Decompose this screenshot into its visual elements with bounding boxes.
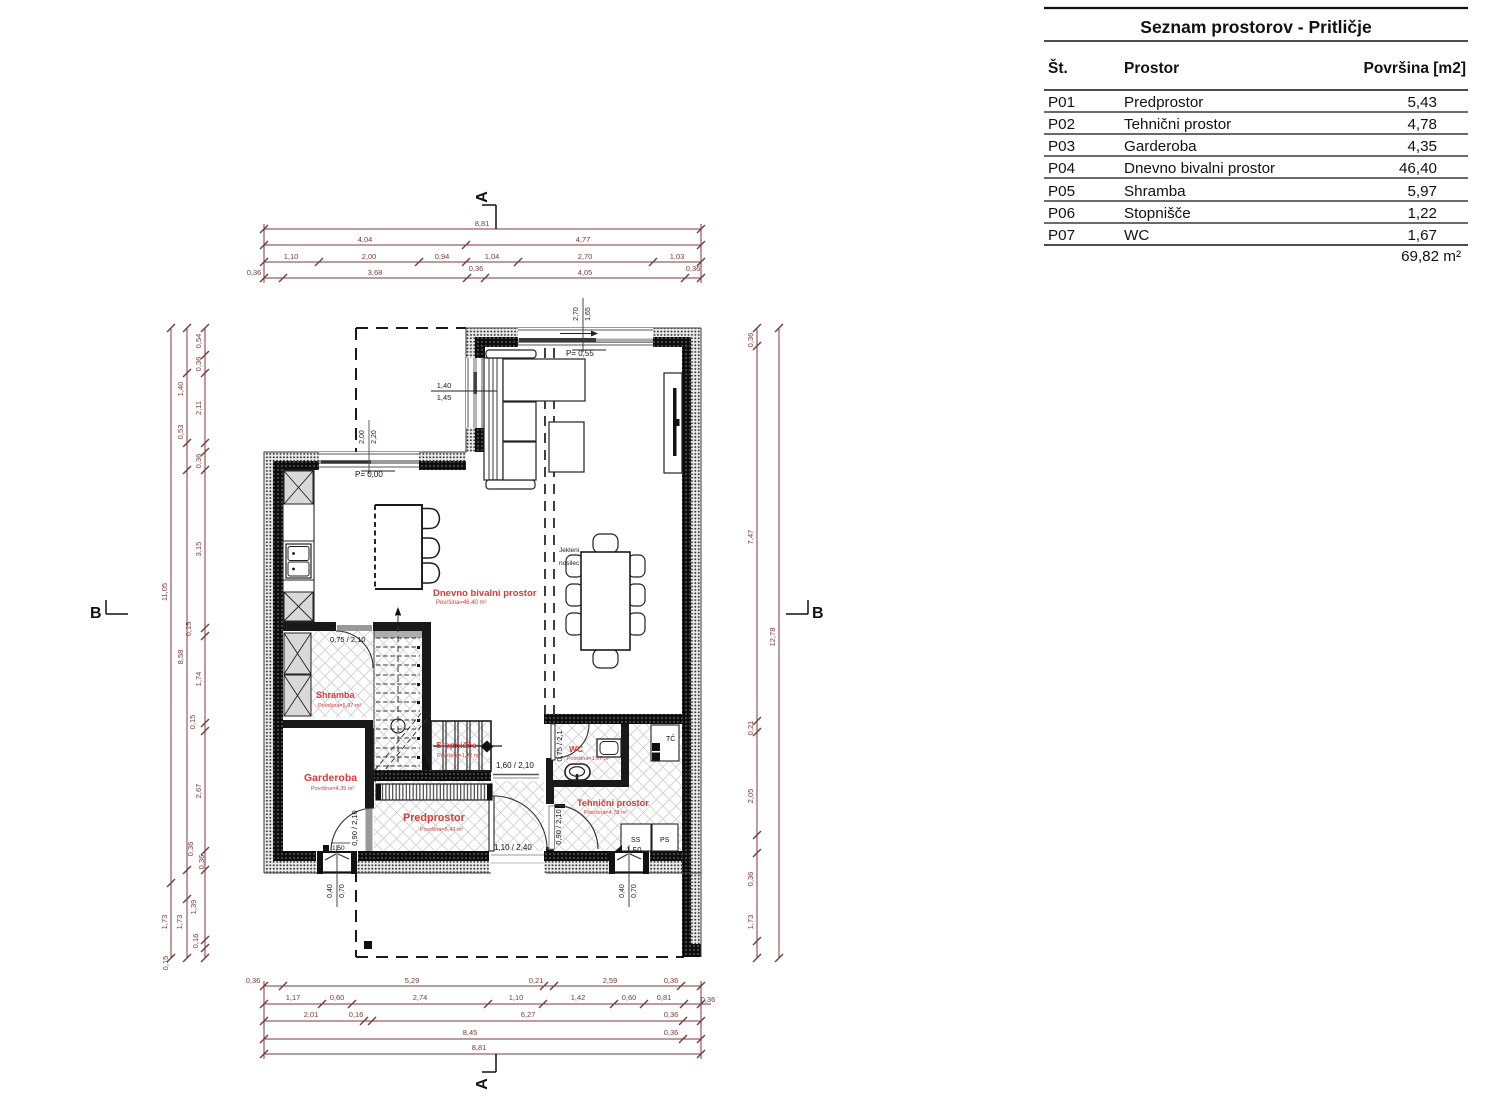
svg-text:0,36: 0,36: [186, 842, 195, 857]
svg-text:A: A: [474, 1078, 491, 1090]
svg-text:0,90 / 2,10: 0,90 / 2,10: [350, 810, 359, 845]
svg-text:46,40: 46,40: [1399, 160, 1437, 177]
svg-text:SS: SS: [631, 837, 641, 844]
svg-text:Površina=5,43 m²: Površina=5,43 m²: [420, 827, 463, 833]
svg-text:Shramba: Shramba: [1124, 183, 1186, 200]
svg-text:WC: WC: [1124, 227, 1149, 244]
svg-text:Površina=1,67 m²: Površina=1,67 m²: [567, 756, 610, 762]
svg-text:11,05: 11,05: [160, 583, 169, 601]
svg-text:69,82 m²: 69,82 m²: [1401, 248, 1461, 265]
svg-text:Površina=1,22 m²: Površina=1,22 m²: [437, 753, 480, 759]
svg-text:Površina [m2]: Površina [m2]: [1363, 60, 1466, 77]
svg-text:1,73: 1,73: [746, 915, 755, 930]
svg-text:Tehnični prostor: Tehnični prostor: [1124, 116, 1231, 133]
svg-text:1,73: 1,73: [160, 915, 169, 930]
svg-text:1,10: 1,10: [284, 252, 299, 261]
svg-text:0,90 / 2,10: 0,90 / 2,10: [554, 809, 563, 844]
svg-text:P07: P07: [1048, 227, 1075, 244]
svg-text:Površina=46,40 m²: Površina=46,40 m²: [436, 600, 487, 606]
svg-text:2,74: 2,74: [413, 993, 428, 1002]
svg-text:Seznam prostorov - Pritličje: Seznam prostorov - Pritličje: [1140, 17, 1372, 37]
svg-text:4,35: 4,35: [1407, 138, 1437, 155]
svg-text:0,36: 0,36: [194, 357, 203, 372]
svg-text:Garderoba: Garderoba: [304, 772, 357, 784]
svg-text:1,40: 1,40: [437, 381, 452, 390]
svg-text:Št.: Št.: [1048, 59, 1068, 77]
svg-text:0,15: 0,15: [184, 622, 193, 637]
svg-text:5,97: 5,97: [1407, 183, 1437, 200]
svg-text:1,60 / 2,10: 1,60 / 2,10: [496, 761, 534, 770]
svg-text:1,65: 1,65: [585, 307, 592, 321]
svg-text:0,16: 0,16: [349, 1010, 364, 1019]
svg-text:8,58: 8,58: [176, 650, 185, 665]
svg-text:B: B: [812, 605, 824, 622]
svg-text:5,43: 5,43: [1407, 94, 1437, 111]
svg-text:2,01: 2,01: [304, 1010, 319, 1019]
svg-text:A: A: [474, 191, 491, 203]
svg-text:1,50: 1,50: [332, 845, 345, 852]
svg-text:0,36: 0,36: [246, 976, 261, 985]
svg-text:0,36: 0,36: [701, 995, 716, 1004]
svg-text:B: B: [90, 605, 102, 622]
svg-text:2,20: 2,20: [371, 430, 378, 444]
svg-text:0,60: 0,60: [330, 993, 345, 1002]
svg-text:Dnevno bivalni prostor: Dnevno bivalni prostor: [433, 588, 537, 599]
svg-text:0,36: 0,36: [664, 1010, 679, 1019]
svg-text:8,81: 8,81: [475, 219, 490, 228]
svg-text:WC: WC: [569, 744, 583, 754]
svg-text:1,45: 1,45: [437, 393, 452, 402]
svg-text:Garderoba: Garderoba: [1124, 138, 1197, 155]
svg-text:Površina=4,78 m²: Površina=4,78 m²: [584, 810, 627, 816]
svg-text:0,36: 0,36: [746, 333, 755, 348]
svg-text:2,00: 2,00: [359, 430, 366, 444]
svg-text:4,78: 4,78: [1407, 116, 1437, 133]
svg-text:3,15: 3,15: [194, 542, 203, 557]
svg-text:0,40: 0,40: [327, 884, 334, 898]
svg-text:4,77: 4,77: [576, 235, 591, 244]
svg-text:1,74: 1,74: [194, 672, 203, 687]
svg-text:4,04: 4,04: [358, 235, 373, 244]
svg-text:0,21: 0,21: [529, 976, 544, 985]
svg-text:P03: P03: [1048, 138, 1075, 155]
svg-text:P06: P06: [1048, 205, 1075, 222]
svg-text:2,70: 2,70: [578, 252, 593, 261]
svg-text:TČ: TČ: [666, 734, 675, 743]
svg-text:3,68: 3,68: [368, 268, 383, 277]
svg-text:0,36: 0,36: [194, 454, 203, 469]
svg-text:0,15: 0,15: [188, 715, 197, 730]
svg-text:P02: P02: [1048, 116, 1075, 133]
svg-text:8,81: 8,81: [472, 1043, 487, 1052]
svg-text:Shramba: Shramba: [316, 690, 356, 700]
svg-text:1,22: 1,22: [1407, 205, 1437, 222]
svg-text:0,36: 0,36: [746, 872, 755, 887]
svg-text:0,36: 0,36: [664, 976, 679, 985]
svg-text:5,29: 5,29: [405, 976, 420, 985]
svg-text:0,70: 0,70: [339, 884, 346, 898]
svg-text:Površina=5,97 m²: Površina=5,97 m²: [318, 703, 361, 709]
svg-text:8,45: 8,45: [463, 1028, 478, 1037]
svg-text:1,39: 1,39: [189, 900, 198, 915]
svg-text:Stopnišče: Stopnišče: [436, 740, 477, 750]
svg-text:P05: P05: [1048, 183, 1075, 200]
svg-text:0,53: 0,53: [176, 425, 185, 440]
svg-text:1,04: 1,04: [485, 252, 500, 261]
svg-text:2,05: 2,05: [746, 789, 755, 804]
svg-text:2,67: 2,67: [194, 784, 203, 799]
svg-text:1,73: 1,73: [175, 915, 184, 930]
svg-text:PS: PS: [660, 837, 670, 844]
svg-text:7,47: 7,47: [746, 530, 755, 545]
svg-text:Tehnični prostor: Tehnični prostor: [577, 798, 649, 808]
svg-text:0,70: 0,70: [631, 884, 638, 898]
svg-text:Stopnišče: Stopnišče: [1124, 205, 1191, 222]
svg-text:0,16: 0,16: [191, 934, 200, 949]
svg-text:1,17: 1,17: [286, 993, 301, 1002]
svg-text:nosilec: nosilec: [559, 560, 580, 567]
svg-text:Prostor: Prostor: [1124, 60, 1179, 77]
svg-text:0,40: 0,40: [619, 884, 626, 898]
svg-text:1,42: 1,42: [571, 993, 586, 1002]
svg-text:0,60: 0,60: [622, 993, 637, 1002]
svg-text:1,50: 1,50: [626, 846, 642, 855]
svg-text:0,75 / 2,10: 0,75 / 2,10: [330, 635, 365, 644]
svg-text:0,36: 0,36: [247, 268, 262, 277]
svg-text:0,36: 0,36: [197, 855, 206, 870]
svg-text:1,03: 1,03: [670, 252, 685, 261]
svg-text:2,70: 2,70: [573, 307, 580, 321]
svg-text:1,67: 1,67: [1407, 227, 1437, 244]
svg-text:12,78: 12,78: [768, 628, 777, 647]
svg-text:0,94: 0,94: [435, 252, 450, 261]
svg-text:0,54: 0,54: [194, 334, 203, 349]
svg-text:0,21: 0,21: [746, 721, 755, 736]
svg-text:2,00: 2,00: [362, 252, 377, 261]
svg-text:1,40: 1,40: [176, 382, 185, 397]
svg-text:0,36: 0,36: [664, 1028, 679, 1037]
svg-text:1,10 / 2,40: 1,10 / 2,40: [494, 843, 532, 852]
svg-text:2,59: 2,59: [603, 976, 618, 985]
svg-text:Jekleni: Jekleni: [559, 547, 579, 554]
svg-text:6,27: 6,27: [521, 1010, 536, 1019]
svg-text:0,75 / 2,1: 0,75 / 2,1: [555, 730, 564, 761]
svg-text:0,36: 0,36: [686, 264, 701, 273]
svg-text:Dnevno bivalni prostor: Dnevno bivalni prostor: [1124, 160, 1275, 177]
svg-text:Predprostor: Predprostor: [403, 812, 466, 824]
svg-text:Površina=4,35 m²: Površina=4,35 m²: [311, 786, 354, 792]
svg-text:Predprostor: Predprostor: [1124, 94, 1203, 111]
svg-text:0,81: 0,81: [657, 993, 672, 1002]
svg-text:4,05: 4,05: [578, 268, 593, 277]
svg-text:P04: P04: [1048, 160, 1075, 177]
svg-text:0,15: 0,15: [161, 956, 170, 971]
svg-text:P01: P01: [1048, 94, 1075, 111]
svg-text:2,11: 2,11: [194, 401, 203, 415]
svg-text:0,36: 0,36: [469, 264, 484, 273]
svg-text:1,10: 1,10: [509, 993, 524, 1002]
